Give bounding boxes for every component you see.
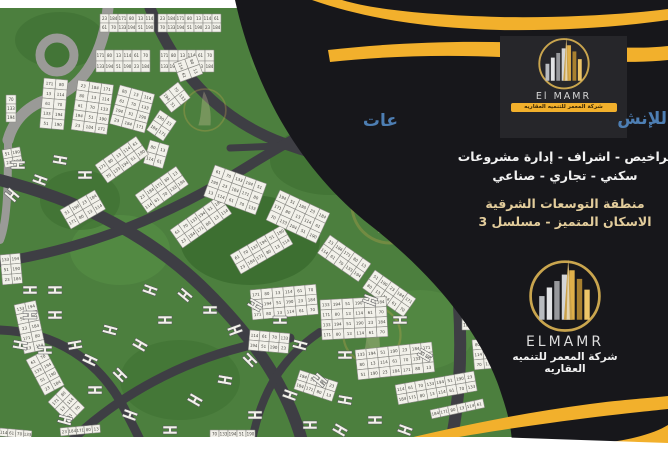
svg-text:114: 114 [285,289,293,295]
svg-text:184: 184 [168,16,176,21]
svg-text:80: 80 [336,331,342,336]
services-line-2: سكني - تجاري - صناعي [440,166,668,185]
svg-text:80: 80 [266,311,272,316]
svg-text:190: 190 [463,313,471,318]
svg-text:23: 23 [368,320,374,325]
svg-text:13: 13 [180,53,186,58]
svg-text:23: 23 [134,64,140,69]
svg-text:61: 61 [369,330,375,335]
svg-text:70: 70 [212,432,218,437]
svg-text:61: 61 [368,310,374,315]
svg-text:13: 13 [116,53,122,58]
svg-text:190: 190 [270,344,278,350]
svg-text:194: 194 [368,350,377,356]
location-line-2: الاسكان المتميز - مسلسل 3 [440,213,668,231]
svg-text:13: 13 [196,16,202,21]
svg-text:184: 184 [392,368,401,374]
svg-text:23: 23 [402,347,408,353]
map-road [230,145,465,148]
svg-text:194: 194 [128,25,136,30]
svg-text:51: 51 [360,371,366,377]
plot-strip: 231841718013114617013319451190 [100,14,154,32]
plot-strip: 70133194 [6,95,16,122]
svg-text:51: 51 [346,321,352,326]
svg-text:114: 114 [204,16,212,21]
headline-left-fragment: عات [346,111,398,131]
svg-text:61: 61 [392,358,398,364]
svg-text:51: 51 [43,121,49,126]
svg-text:70: 70 [403,357,409,363]
plot-strip: 1718013114617013319451190231841718013114… [250,284,318,320]
svg-text:133: 133 [24,432,32,438]
plot-strip: 7013319451190 [210,430,255,438]
svg-text:194: 194 [250,343,258,349]
svg-text:13: 13 [277,310,283,315]
bottom-logo-mark [522,257,608,333]
svg-text:13: 13 [370,360,376,366]
svg-text:61: 61 [102,25,108,30]
svg-text:70: 70 [310,307,316,312]
svg-text:51: 51 [116,64,122,69]
svg-text:61: 61 [297,288,303,293]
plot-strip: 5119023184 [2,147,23,168]
svg-text:171: 171 [46,81,54,87]
svg-text:194: 194 [106,64,114,69]
svg-text:13: 13 [93,426,99,431]
svg-text:133: 133 [97,64,105,69]
svg-text:13: 13 [138,16,144,21]
svg-text:184: 184 [308,297,316,303]
svg-text:184: 184 [463,323,471,328]
svg-text:51: 51 [138,25,144,30]
svg-text:70: 70 [308,287,314,292]
svg-text:133: 133 [168,25,176,30]
svg-text:61: 61 [485,351,491,356]
svg-text:23: 23 [205,25,211,30]
svg-text:171: 171 [252,292,260,298]
services-block: تراخيص - اشراف - إدارة مشروعات سكني - تج… [440,147,668,185]
svg-text:70: 70 [207,53,213,58]
svg-text:190: 190 [247,432,255,437]
svg-text:133: 133 [322,302,330,307]
top-logo-name: El MAMR [536,91,591,102]
svg-text:190: 190 [54,122,62,128]
svg-text:51: 51 [380,349,386,355]
svg-text:190: 190 [286,299,294,305]
svg-text:23: 23 [102,16,108,21]
svg-text:61: 61 [45,101,51,106]
svg-text:114: 114 [57,92,65,98]
svg-text:194: 194 [7,115,15,120]
svg-text:80: 80 [335,311,341,316]
svg-text:51: 51 [187,25,193,30]
svg-text:184: 184 [412,346,421,352]
svg-text:190: 190 [195,25,203,30]
svg-text:80: 80 [107,53,113,58]
svg-text:80: 80 [264,291,270,296]
svg-text:114: 114 [287,309,295,315]
svg-text:194: 194 [55,112,63,118]
svg-text:61: 61 [134,53,140,58]
svg-text:70: 70 [272,334,278,339]
svg-text:171: 171 [97,53,105,58]
svg-text:171: 171 [254,312,262,318]
svg-text:194: 194 [463,303,471,308]
svg-text:133: 133 [280,335,288,341]
svg-text:190: 190 [356,320,364,325]
svg-text:80: 80 [475,342,481,347]
svg-text:80: 80 [359,362,365,368]
svg-text:194: 194 [177,25,185,30]
svg-text:133: 133 [1,257,9,263]
svg-text:114: 114 [0,430,8,436]
svg-text:190: 190 [12,266,20,272]
svg-text:13: 13 [275,290,281,295]
plot-strip: 11461701331945119023 [248,330,290,353]
svg-text:171: 171 [177,16,185,21]
svg-text:23: 23 [281,345,287,350]
svg-text:171: 171 [76,427,84,433]
svg-text:190: 190 [390,348,399,354]
svg-text:114: 114 [356,330,364,335]
svg-text:23: 23 [474,313,480,318]
svg-text:190: 190 [124,64,132,69]
svg-text:194: 194 [334,321,342,326]
svg-text:23: 23 [382,369,388,375]
svg-text:133: 133 [161,64,169,69]
plot-strip: 23184171801311461701331945119023184171 [71,80,114,135]
plot-strip: 171801311461701331945119023184 [96,50,150,72]
bottom-logo-company: شركة المعمر للتنميه العقاريه [495,351,635,375]
svg-text:114: 114 [124,53,132,58]
svg-text:70: 70 [476,362,482,367]
svg-text:114: 114 [380,359,389,365]
location-line-1: منطقة التوسعات الشرقية [440,195,668,213]
svg-text:171: 171 [322,312,330,317]
svg-text:70: 70 [160,25,166,30]
svg-text:114: 114 [474,352,482,358]
location-block: منطقة التوسعات الشرقية الاسكان المتميز -… [440,195,668,231]
top-logo-mark [533,36,595,90]
svg-text:70: 70 [143,53,149,58]
plot-strip: 80131146170133 [472,338,495,370]
svg-text:13: 13 [46,91,52,96]
svg-text:51: 51 [239,432,245,437]
svg-text:133: 133 [323,322,331,327]
top-logo-box: El MAMR شركة المعمر للتنميه العقاريه [500,36,627,138]
svg-text:184: 184 [378,319,386,324]
svg-text:184: 184 [110,16,118,21]
svg-text:190: 190 [146,25,154,30]
svg-text:80: 80 [129,16,135,21]
plot-strip: 1945119023184171 [462,300,482,330]
plot-strip: 1331945119023184171801311461701331945119… [320,297,388,340]
svg-text:61: 61 [214,16,220,21]
svg-text:194: 194 [264,301,272,307]
svg-text:133: 133 [485,361,493,367]
svg-text:61: 61 [299,308,305,313]
svg-text:194: 194 [11,256,19,262]
svg-text:190: 190 [370,370,379,376]
svg-text:80: 80 [171,53,177,58]
svg-text:114: 114 [251,333,259,339]
gold-swoosh-corner [592,425,668,444]
svg-text:171: 171 [323,332,331,337]
svg-text:184: 184 [142,64,150,69]
svg-text:70: 70 [17,431,23,436]
svg-text:70: 70 [8,97,14,102]
svg-text:184: 184 [13,276,21,282]
svg-text:51: 51 [276,300,282,305]
svg-text:51: 51 [4,267,10,272]
svg-text:13: 13 [426,365,432,371]
svg-text:61: 61 [198,53,204,58]
svg-text:51: 51 [261,344,267,349]
svg-text:51: 51 [474,303,480,308]
svg-text:133: 133 [357,351,366,357]
svg-text:171: 171 [119,16,127,21]
svg-text:184: 184 [213,25,221,30]
svg-text:133: 133 [43,111,51,117]
flyer: 2318417180131146170133194511902318417180… [0,0,668,452]
svg-text:80: 80 [415,366,421,372]
svg-text:13: 13 [346,311,352,316]
bottom-logo-name: ELMAMR [495,334,635,350]
svg-text:61: 61 [9,430,15,435]
svg-text:23: 23 [160,16,166,21]
svg-text:80: 80 [59,82,65,87]
svg-text:70: 70 [379,309,385,314]
svg-text:23: 23 [62,429,68,434]
plot-strip: 1718013114617013319451190 [40,78,68,130]
svg-text:23: 23 [298,298,304,303]
svg-text:133: 133 [7,106,15,111]
svg-text:184: 184 [377,299,385,304]
svg-text:80: 80 [85,427,91,432]
svg-text:194: 194 [229,432,237,437]
svg-text:171: 171 [473,323,481,328]
plot-strip: 1331945119023184 [0,253,23,285]
svg-text:184: 184 [206,64,214,69]
plot-strip: 23184171801311461701331945119023184 [158,14,221,32]
svg-text:70: 70 [57,102,63,107]
svg-text:70: 70 [111,25,117,30]
svg-text:80: 80 [187,16,193,21]
svg-text:171: 171 [403,367,412,373]
svg-text:51: 51 [345,301,351,306]
svg-text:114: 114 [355,310,363,315]
svg-text:70: 70 [380,329,386,334]
map-top-margin [0,0,530,8]
svg-text:171: 171 [161,53,169,58]
top-logo-ribbon: شركة المعمر للتنميه العقاريه [511,103,617,112]
svg-text:23: 23 [4,277,10,282]
svg-text:13: 13 [485,341,491,346]
services-line-1: تراخيص - اشراف - إدارة مشروعات [440,147,668,166]
svg-text:13: 13 [347,331,353,336]
svg-text:133: 133 [119,25,127,30]
svg-text:114: 114 [146,16,154,21]
headline-right-fragment: للإنش [627,109,667,129]
bottom-logo-block: ELMAMR شركة المعمر للتنميه العقاريه [495,257,635,375]
svg-text:194: 194 [333,301,341,306]
svg-text:61: 61 [262,334,268,339]
svg-text:133: 133 [220,432,228,437]
svg-text:190: 190 [355,300,363,305]
